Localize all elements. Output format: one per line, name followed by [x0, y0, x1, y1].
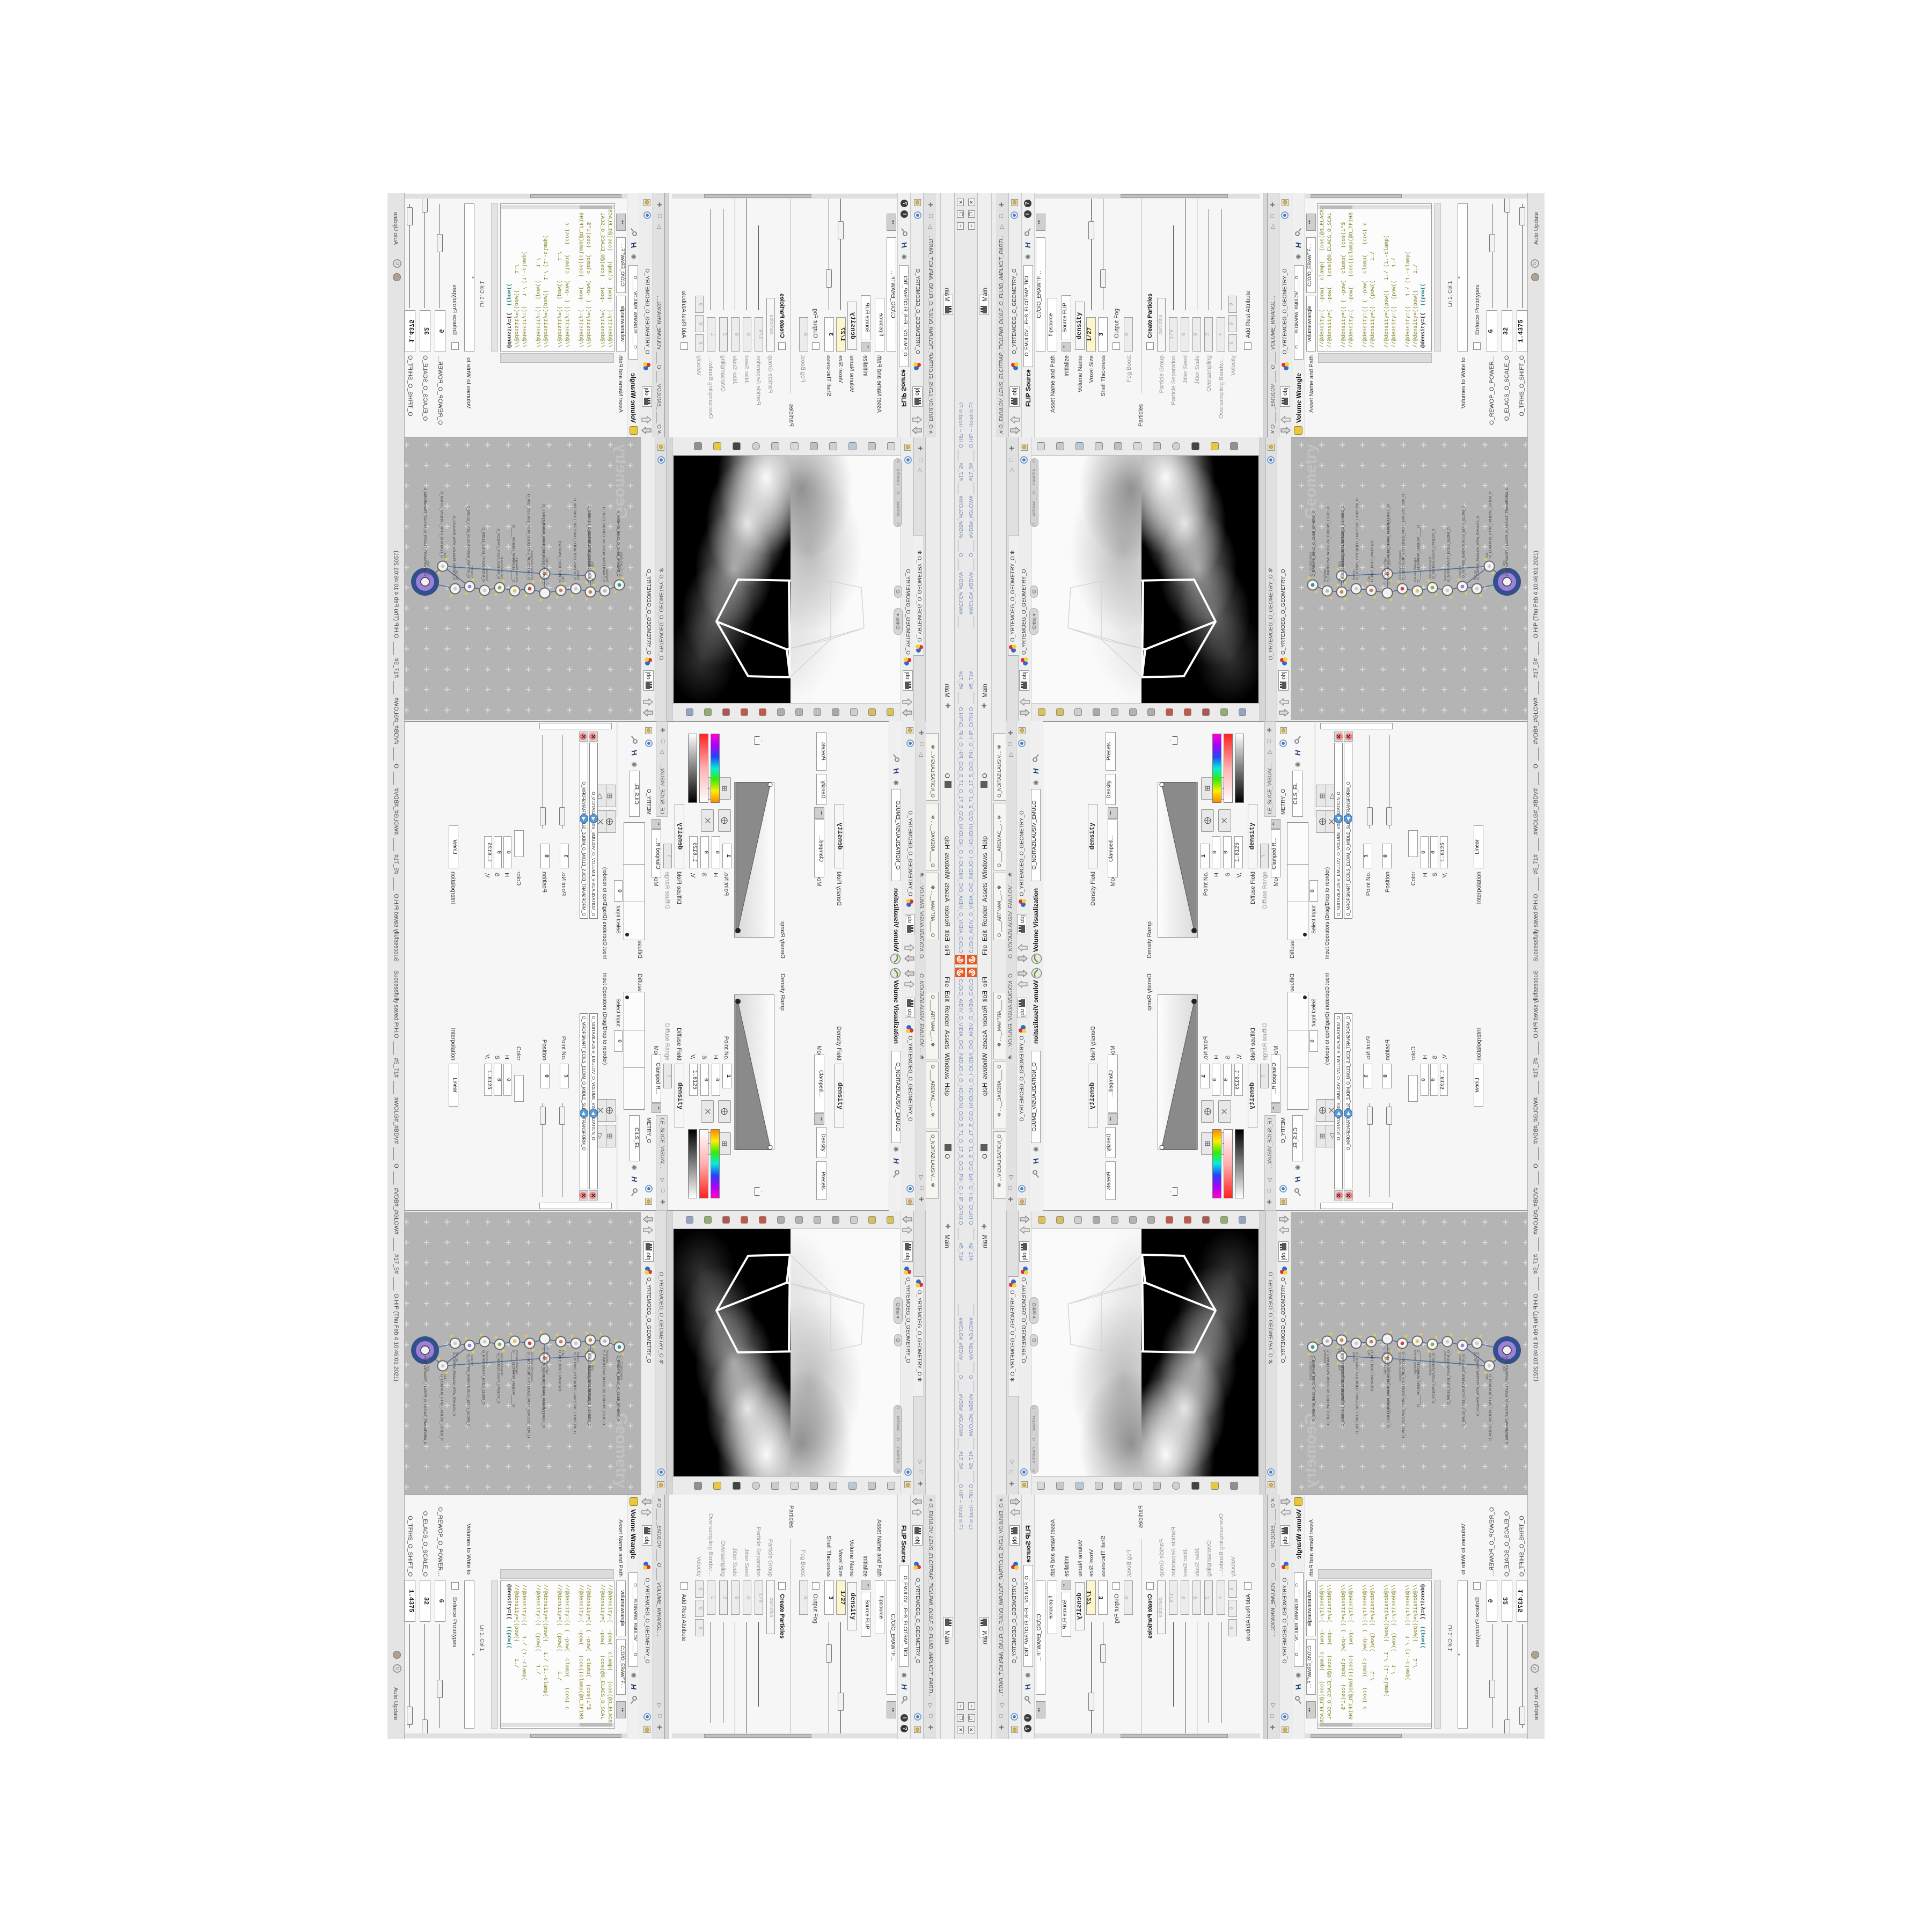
svg-text:O_MROFSNART_TLUSER_O_RESULT_TR: O_MROFSNART_TLUSER_O_RESULT_TRANSFORM_O [1505, 487, 1509, 576]
svg-text:Box: Box [590, 561, 594, 567]
svg-text:O_EMARFERIW_NOGYLOP_EREHPS_EBU: O_EMARFERIW_NOGYLOP_EREHPS_EBUC_O [1327, 1350, 1330, 1425]
svg-text:O_EMARFERIW_NOGYLOP_EREHPS_EBU: O_EMARFERIW_NOGYLOP_EREHPS_EBUC_O [602, 1350, 605, 1425]
svg-text:O_EVRUC_TRATS_PMATS_O: O_EVRUC_TRATS_PMATS_O [541, 1367, 545, 1414]
svg-text:O_SNOGYLOP_YRTEMOEG_MORF_EMULO: O_SNOGYLOP_YRTEMOEG_MORF_EMULOV_BDV_O [526, 494, 530, 580]
svg-text:File: File [590, 1349, 594, 1355]
svg-text:Geometry: Geometry [1302, 444, 1320, 519]
svg-text:File: File [590, 577, 594, 583]
svg-text:VolumeVisualiz: VolumeVisualiz [500, 1353, 503, 1376]
svg-text:O_HCTIWS_YRTEMOEG_LANRETXE_LAN: O_HCTIWS_YRTEMOEG_LANRETXE_LANRETNI_O [573, 498, 576, 580]
svg-text:Geometry: Geometry [612, 444, 630, 519]
svg-text:Clip: Clip [561, 1350, 565, 1356]
svg-text:O_PILC_BRUS_PMATS2O: O_PILC_BRUS_PMATS2O [1371, 1350, 1374, 1392]
svg-text:JB0.N03,PETS.TEPOLS.D_N3,NBEG_: JB0.N03,PETS.TEPOLS.D_N3,NBEG_O [1341, 506, 1345, 567]
svg-text:O_MROFSNART_TLUSER_O_RESULT_TR: O_MROFSNART_TLUSER_O_RESULT_TRANSFORM_O [423, 1356, 427, 1445]
svg-text:O_EVRUC_TRATS_PMATS_O: O_EVRUC_TRATS_PMATS_O [541, 518, 545, 565]
svg-text:O_EGREM_EMULOV_HTIW_EMULOV_O: O_EGREM_EMULOV_HTIW_EMULOV_O [452, 516, 456, 580]
svg-text:O_HCTIWS_NOITAZILAUSV_ECILS_EL: O_HCTIWS_NOITAZILAUSV_ECILS_ELDIM_O [1462, 1354, 1466, 1426]
svg-text:PolyWire: PolyWire [605, 568, 609, 582]
svg-text:O_EMARFERIW_NOGYLOP_EREHPS_EBU: O_EMARFERIW_NOGYLOP_EREHPS_EBUC_O [602, 507, 605, 582]
svg-text:Null: Null [443, 1374, 447, 1380]
svg-text:PolyWire: PolyWire [605, 1350, 609, 1364]
svg-text:O_EREHPS_EBUC_O_CUBE_SPHERE_O: O_EREHPS_EBUC_O_CUBE_SPHERE_O [616, 1356, 620, 1422]
svg-text:O_ECAFRUS_HTIW_EMULOV_EGREM_O: O_ECAFRUS_HTIW_EMULOV_EGREM_O [440, 492, 443, 558]
svg-text:O_MROFSNART_TLUSER_O_RESULT_TR: O_MROFSNART_TLUSER_O_RESULT_TRANSFORM_O [423, 487, 427, 576]
svg-text:Switch: Switch [576, 1352, 580, 1362]
svg-text:Switch: Switch [576, 570, 580, 580]
svg-text:Box: Box [590, 1365, 594, 1371]
svg-text:Clip2: Clip2 [545, 1367, 548, 1375]
svg-text:Volume Wrangle: Volume Wrangle [515, 1350, 518, 1375]
svg-text:Transform: Transform [485, 1350, 488, 1365]
svg-text:O_SNOGYLOP_YRTEMOEG_MORF_EMULO: O_SNOGYLOP_YRTEMOEG_MORF_EMULOV_BDV_O [526, 1352, 530, 1438]
svg-text:JB0.N03,PETS.TEPOLS.D_N3,NBEG_: JB0.N03,PETS.TEPOLS.D_N3,NBEG_O [1341, 1365, 1345, 1426]
svg-text:Geometry: Geometry [1302, 1413, 1320, 1488]
svg-text:Transform: Transform [426, 1356, 430, 1371]
svg-text:an_CubeSphere: an_CubeSphere [619, 552, 623, 576]
svg-text:O_HCTIWS_NOITAZILAUSV_ECILS_EL: O_HCTIWS_NOITAZILAUSV_ECILS_ELDIM_O [466, 1354, 470, 1426]
svg-text:JB0.N03,PETS.TEPOLS.D_N3,NBEG_: JB0.N03,PETS.TEPOLS.D_N3,NBEG_O [587, 1365, 591, 1426]
svg-text:FLIP Source: FLIP Source [545, 1348, 548, 1366]
svg-text:O_MROFSNART_ECILS_ELDIM_O: O_MROFSNART_ECILS_ELDIM_O [481, 528, 485, 582]
svg-text:O_EVRUC_TRATS_PMATS_O: O_EVRUC_TRATS_PMATS_O [1387, 1367, 1391, 1414]
svg-text:Clip2: Clip2 [545, 557, 548, 565]
svg-text:O_PILC_BRUS_PMATS2O: O_PILC_BRUS_PMATS2O [1371, 540, 1374, 582]
svg-text:O_____ELGNARW_EMULOV_____O: O_____ELGNARW_EMULOV_____O [511, 1350, 515, 1407]
svg-text:O_HCTIWS_YRTEMOEG_LANRETXE_LAN: O_HCTIWS_YRTEMOEG_LANRETXE_LANRETNI_O [1356, 1352, 1359, 1434]
svg-text:O_MROFSNART_ECILS_ELDIM_O: O_MROFSNART_ECILS_ELDIM_O [1447, 1350, 1451, 1404]
svg-text:O_EVRUC_TRATS_PMATS_O: O_EVRUC_TRATS_PMATS_O [1387, 518, 1391, 565]
svg-text:O_EMARFERIW_NOGYLOP_EREHPS_EBU: O_EMARFERIW_NOGYLOP_EREHPS_EBUC_O [1327, 507, 1330, 582]
svg-text:O_____ELGNARW_EMULOV_____O: O_____ELGNARW_EMULOV_____O [1417, 525, 1421, 582]
svg-text:an_CubeSphere: an_CubeSphere [619, 1356, 623, 1380]
svg-text:Null: Null [443, 552, 447, 558]
svg-text:O_____ELGNARW_EMULOV_____O: O_____ELGNARW_EMULOV_____O [1417, 1350, 1421, 1407]
svg-text:O_SNOGYLOP_YRTEMOEG_MORF_EMULO: O_SNOGYLOP_YRTEMOEG_MORF_EMULOV_BDV_O [1402, 1352, 1406, 1438]
svg-text:O_NOITAZILAUSIV_EMULOV_O: O_NOITAZILAUSIV_EMULOV_O [1432, 529, 1436, 579]
svg-text:Transform: Transform [485, 567, 488, 582]
svg-text:JB0.N03,PETS.TEPOLS.D_N3,NBEG_: JB0.N03,PETS.TEPOLS.D_N3,NBEG_O [587, 506, 591, 567]
svg-text:O_PILC_BRUS_PMATS2O: O_PILC_BRUS_PMATS2O [558, 540, 561, 582]
svg-text:O_NOITAZILAUSIV_EMULOV_O: O_NOITAZILAUSIV_EMULOV_O [496, 529, 500, 579]
svg-text:Merge: Merge [455, 1352, 459, 1362]
svg-text:O_ECAFRUS_HTIW_EMULOV_EGREM_O: O_ECAFRUS_HTIW_EMULOV_EGREM_O [1489, 1374, 1492, 1440]
svg-text:O_ECAFRUS_HTIW_EMULOV_EGREM_O: O_ECAFRUS_HTIW_EMULOV_EGREM_O [440, 1374, 443, 1440]
svg-text:FLIP Source: FLIP Source [545, 566, 548, 584]
svg-text:Switch2: Switch2 [470, 566, 473, 578]
svg-text:O_EGREM_EMULOV_HTIW_EMULOV_O: O_EGREM_EMULOV_HTIW_EMULOV_O [452, 1352, 456, 1416]
svg-text:O_EGREM_EMULOV_HTIW_EMULOV_O: O_EGREM_EMULOV_HTIW_EMULOV_O [1476, 516, 1480, 580]
svg-text:Volume Wrangle: Volume Wrangle [515, 557, 518, 582]
svg-text:O_HCTIWS_NOITAZILAUSV_ECILS_EL: O_HCTIWS_NOITAZILAUSV_ECILS_ELDIM_O [466, 506, 470, 578]
svg-text:O_MROFSNART_TLUSER_O_RESULT_TR: O_MROFSNART_TLUSER_O_RESULT_TRANSFORM_O [1505, 1356, 1509, 1445]
svg-text:O_PILC_BRUS_PMATS2O: O_PILC_BRUS_PMATS2O [558, 1350, 561, 1392]
svg-text:Transform: Transform [426, 561, 430, 576]
svg-text:O_MROFSNART_ECILS_ELDIM_O: O_MROFSNART_ECILS_ELDIM_O [481, 1350, 485, 1404]
svg-text:VDB from Polygons: VDB from Polygons [530, 551, 533, 580]
svg-text:VolumeVisualiz: VolumeVisualiz [500, 556, 503, 579]
svg-text:O_ECAFRUS_HTIW_EMULOV_EGREM_O: O_ECAFRUS_HTIW_EMULOV_EGREM_O [1489, 492, 1492, 558]
svg-text:O_MROFSNART_ECILS_ELDIM_O: O_MROFSNART_ECILS_ELDIM_O [1447, 528, 1451, 582]
svg-text:O_HCTIWS_YRTEMOEG_LANRETXE_LAN: O_HCTIWS_YRTEMOEG_LANRETXE_LANRETNI_O [573, 1352, 576, 1434]
svg-text:O_EREHPS_EBUC_O_CUBE_SPHERE_O: O_EREHPS_EBUC_O_CUBE_SPHERE_O [1312, 1356, 1316, 1422]
svg-text:O_SNOGYLOP_YRTEMOEG_MORF_EMULO: O_SNOGYLOP_YRTEMOEG_MORF_EMULOV_BDV_O [1402, 494, 1406, 580]
svg-text:VDB from Polygons: VDB from Polygons [530, 1352, 533, 1381]
svg-text:O_HCTIWS_YRTEMOEG_LANRETXE_LAN: O_HCTIWS_YRTEMOEG_LANRETXE_LANRETNI_O [1356, 498, 1359, 580]
svg-text:Clip: Clip [561, 576, 565, 582]
svg-text:Merge: Merge [455, 570, 459, 580]
svg-text:Geometry: Geometry [612, 1413, 630, 1488]
svg-text:O_____ELGNARW_EMULOV_____O: O_____ELGNARW_EMULOV_____O [511, 525, 515, 582]
svg-text:O_EREHPS_EBUC_O_CUBE_SPHERE_O: O_EREHPS_EBUC_O_CUBE_SPHERE_O [616, 510, 620, 576]
svg-text:O_EGREM_EMULOV_HTIW_EMULOV_O: O_EGREM_EMULOV_HTIW_EMULOV_O [1476, 1352, 1480, 1416]
svg-text:O_NOITAZILAUSIV_EMULOV_O: O_NOITAZILAUSIV_EMULOV_O [1432, 1353, 1436, 1403]
svg-text:O_EREHPS_EBUC_O_CUBE_SPHERE_O: O_EREHPS_EBUC_O_CUBE_SPHERE_O [1312, 510, 1316, 576]
svg-text:O_NOITAZILAUSIV_EMULOV_O: O_NOITAZILAUSIV_EMULOV_O [496, 1353, 500, 1403]
svg-text:Switch2: Switch2 [470, 1354, 473, 1366]
svg-text:O_HCTIWS_NOITAZILAUSV_ECILS_EL: O_HCTIWS_NOITAZILAUSV_ECILS_ELDIM_O [1462, 506, 1466, 578]
